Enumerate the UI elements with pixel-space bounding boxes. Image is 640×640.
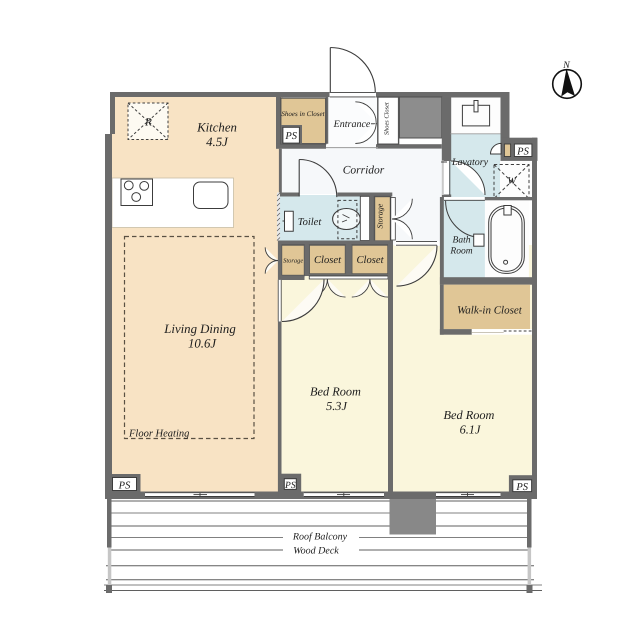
- svg-text:N: N: [562, 60, 571, 71]
- svg-text:PS: PS: [284, 481, 296, 491]
- svg-text:Shoes Closet: Shoes Closet: [383, 102, 390, 135]
- svg-text:4.5J: 4.5J: [206, 135, 229, 149]
- svg-text:Corridor: Corridor: [343, 165, 385, 177]
- svg-text:Bed Room: Bed Room: [310, 385, 361, 399]
- svg-text:PS: PS: [515, 482, 528, 493]
- svg-text:Shoes in Closet: Shoes in Closet: [281, 110, 325, 118]
- svg-text:Living Dining: Living Dining: [163, 322, 236, 336]
- svg-text:W: W: [507, 176, 517, 187]
- svg-text:PS: PS: [118, 480, 131, 491]
- svg-text:Closet: Closet: [356, 255, 384, 266]
- svg-text:Bath: Bath: [453, 235, 471, 245]
- svg-text:R: R: [144, 117, 152, 129]
- svg-text:Walk-in Closet: Walk-in Closet: [457, 305, 523, 317]
- svg-text:6.1J: 6.1J: [460, 423, 481, 437]
- svg-text:Bed Room: Bed Room: [444, 408, 495, 422]
- svg-text:Roof Balcony: Roof Balcony: [292, 532, 348, 543]
- svg-text:Floor Heating: Floor Heating: [128, 429, 189, 440]
- svg-text:Toilet: Toilet: [298, 217, 323, 228]
- svg-text:PS: PS: [516, 146, 529, 157]
- svg-text:Storage: Storage: [375, 203, 384, 228]
- svg-text:10.6J: 10.6J: [188, 337, 217, 351]
- svg-text:Wood Deck: Wood Deck: [293, 546, 339, 557]
- svg-text:Closet: Closet: [314, 255, 342, 266]
- svg-text:5.3J: 5.3J: [326, 399, 347, 413]
- svg-text:PS: PS: [284, 131, 297, 142]
- svg-text:Room: Room: [449, 246, 472, 256]
- svg-text:Entrance: Entrance: [333, 119, 371, 130]
- svg-text:Lavatory: Lavatory: [451, 157, 489, 168]
- svg-text:Storage: Storage: [283, 258, 303, 265]
- svg-text:Kitchen: Kitchen: [196, 121, 237, 135]
